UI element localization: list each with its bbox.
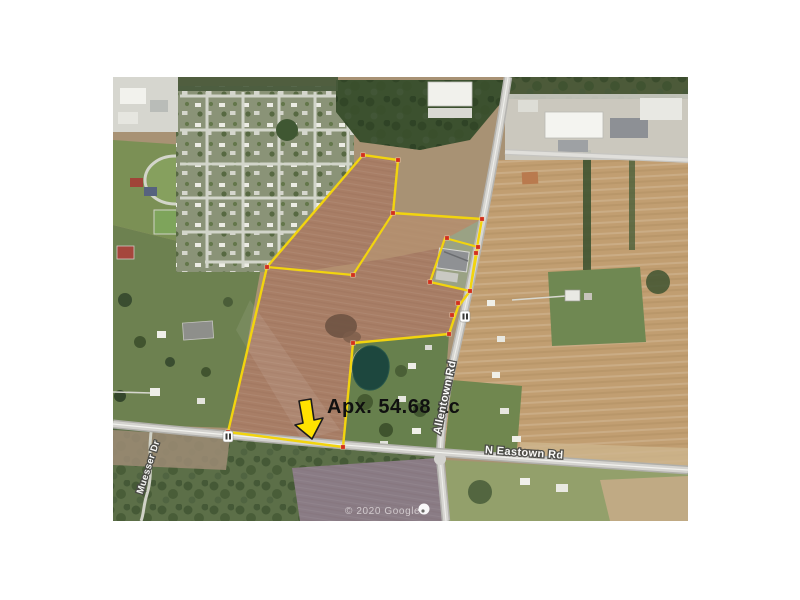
corner-marker xyxy=(468,289,472,293)
corner-marker xyxy=(396,158,400,162)
corner-marker xyxy=(351,341,355,345)
corner-marker xyxy=(445,236,449,240)
aerial-map: Apx. 54.68 ac Allentown Rd N Eastown Rd … xyxy=(0,0,800,600)
corner-marker xyxy=(428,280,432,284)
corner-marker xyxy=(480,217,484,221)
big-box-building xyxy=(428,82,472,106)
route-shield-icon xyxy=(460,311,470,322)
corner-marker xyxy=(456,301,460,305)
corner-marker xyxy=(450,313,454,317)
corner-marker xyxy=(474,251,478,255)
corner-marker xyxy=(476,245,480,249)
map-pin-icon xyxy=(419,504,430,515)
corner-marker xyxy=(391,211,395,215)
corner-marker xyxy=(351,273,355,277)
aerial-listing-photo: Apx. 54.68 ac Allentown Rd N Eastown Rd … xyxy=(0,0,800,600)
google-watermark: © 2020 Google xyxy=(345,506,420,517)
corner-marker xyxy=(447,332,451,336)
corner-marker xyxy=(265,265,269,269)
corner-marker xyxy=(361,153,365,157)
pond xyxy=(353,346,390,390)
corner-marker xyxy=(341,445,345,449)
route-shield-icon xyxy=(223,431,233,442)
